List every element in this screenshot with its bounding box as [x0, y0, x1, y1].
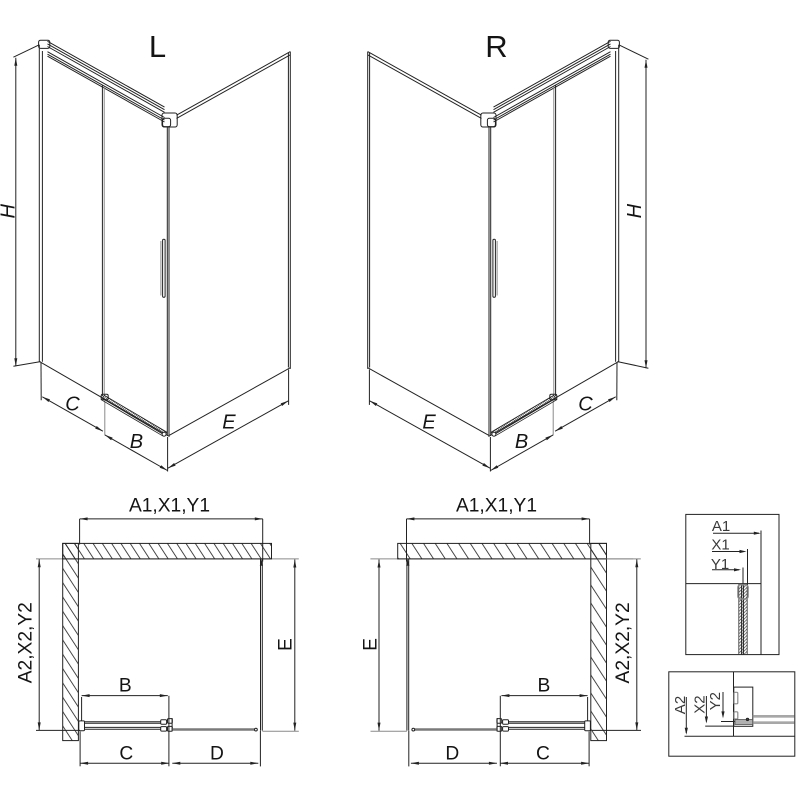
svg-text:D: D	[210, 744, 224, 765]
svg-text:B: B	[537, 676, 550, 697]
svg-text:B: B	[515, 431, 528, 453]
svg-text:H: H	[0, 203, 20, 218]
svg-text:A2,X2,Y2: A2,X2,Y2	[16, 602, 37, 683]
svg-text:B: B	[130, 431, 143, 453]
svg-text:A1,X1,Y1: A1,X1,Y1	[129, 496, 210, 517]
svg-text:L: L	[149, 29, 166, 64]
svg-text:E: E	[360, 638, 381, 651]
svg-text:C: C	[119, 744, 133, 765]
svg-text:A1,X1,Y1: A1,X1,Y1	[456, 496, 537, 517]
svg-text:A1: A1	[712, 518, 730, 535]
svg-text:E: E	[422, 412, 436, 434]
svg-text:R: R	[485, 29, 507, 64]
svg-text:C: C	[536, 744, 550, 765]
svg-text:A2,X2,Y2: A2,X2,Y2	[613, 602, 634, 683]
svg-text:C: C	[578, 393, 593, 415]
svg-text:A2: A2	[672, 696, 689, 714]
svg-text:X1: X1	[711, 536, 729, 553]
svg-text:Y2: Y2	[707, 692, 724, 710]
svg-text:C: C	[65, 393, 80, 415]
svg-text:H: H	[624, 203, 646, 218]
svg-text:E: E	[222, 412, 236, 434]
svg-text:B: B	[119, 676, 132, 697]
svg-text:X2: X2	[691, 695, 708, 713]
svg-text:D: D	[445, 744, 459, 765]
svg-text:E: E	[275, 638, 296, 651]
svg-text:Y1: Y1	[711, 556, 729, 573]
